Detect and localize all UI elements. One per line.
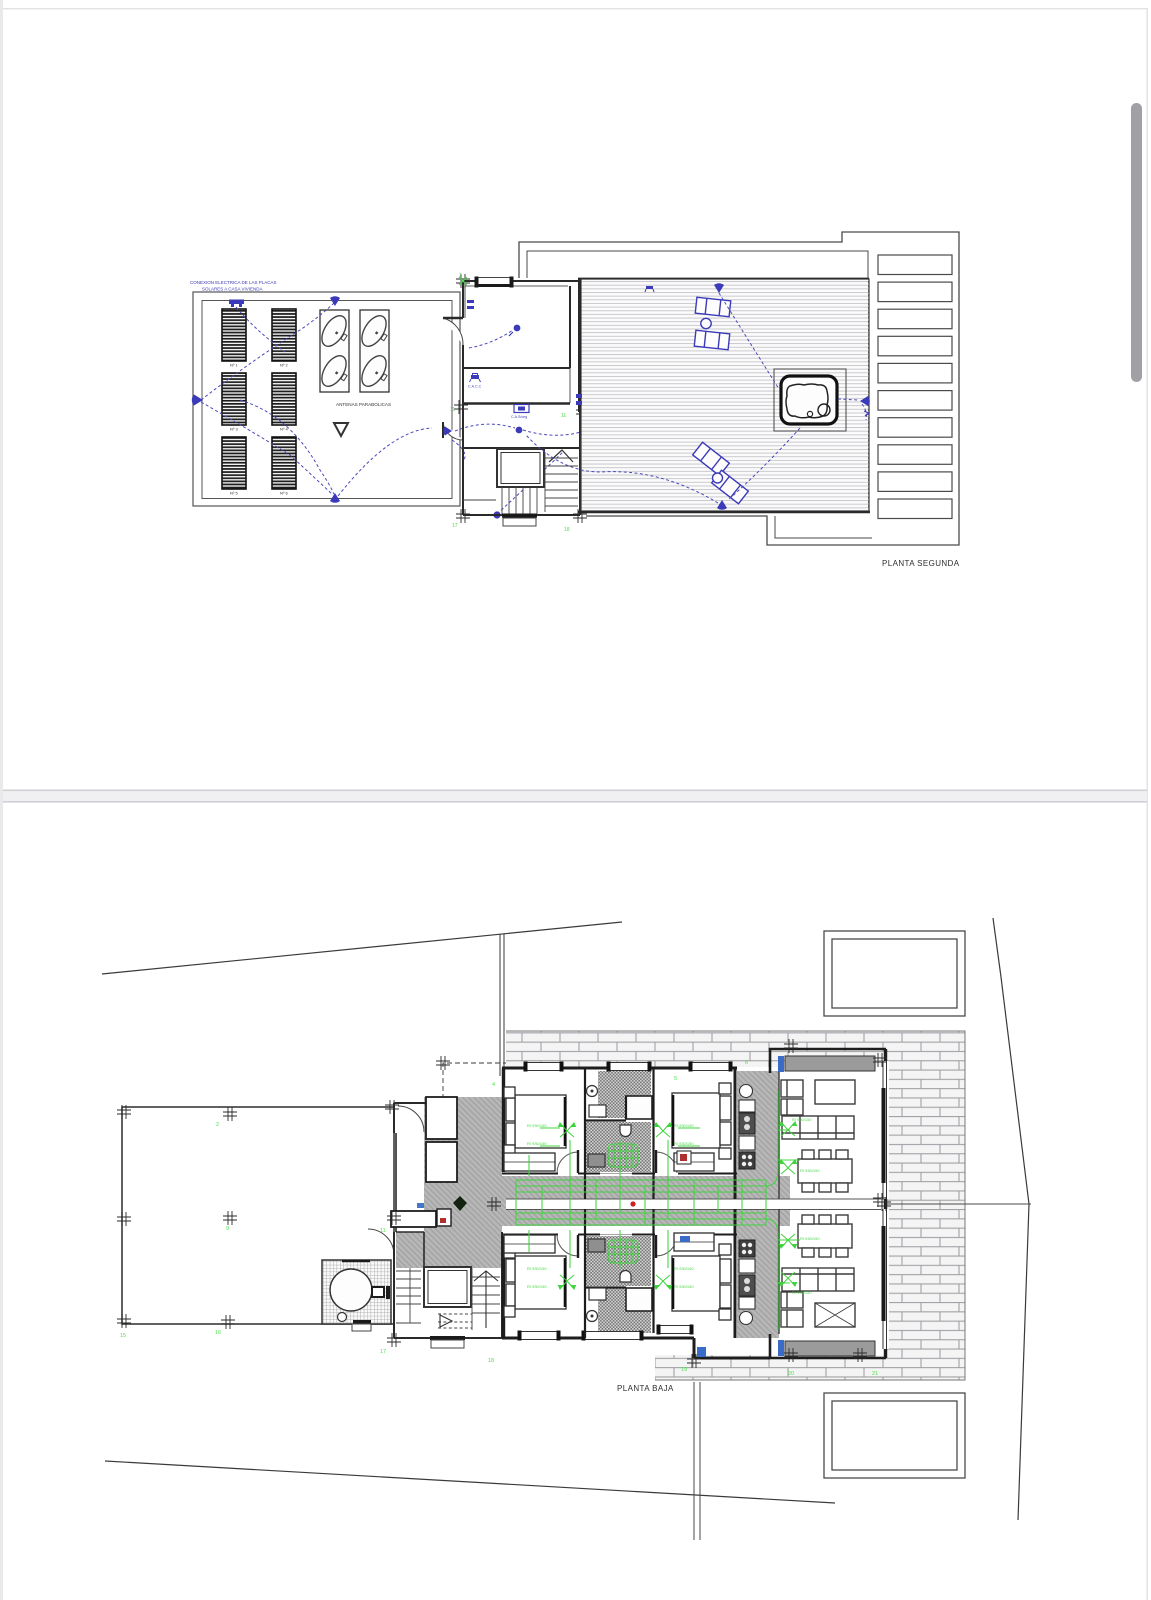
svg-text:5: 5	[674, 1076, 677, 1082]
svg-text:RI 930/150: RI 930/150	[792, 1117, 812, 1122]
svg-text:RI 930/150: RI 930/150	[674, 1141, 694, 1146]
svg-text:15: 15	[120, 1333, 126, 1339]
svg-text:RI 930/150: RI 930/150	[674, 1266, 694, 1271]
svg-text:PLANTA BAJA: PLANTA BAJA	[617, 1384, 674, 1393]
svg-text:21: 21	[872, 1371, 878, 1377]
svg-text:18: 18	[564, 527, 570, 533]
svg-text:4: 4	[492, 1082, 495, 1088]
svg-text:RI 930/150: RI 930/150	[527, 1284, 547, 1289]
svg-text:PLANTA SEGUNDA: PLANTA SEGUNDA	[882, 559, 960, 568]
svg-text:RI 930/150: RI 930/150	[527, 1141, 547, 1146]
svg-text:RI 930/150: RI 930/150	[800, 1168, 820, 1173]
svg-text:17: 17	[380, 1349, 386, 1355]
svg-text:C.A.S/veg: C.A.S/veg	[511, 415, 527, 419]
svg-text:RI 930/150: RI 930/150	[792, 1290, 812, 1295]
svg-text:11: 11	[450, 407, 455, 413]
svg-text:Nº 6: Nº 6	[280, 491, 288, 496]
svg-text:Nº 5: Nº 5	[230, 491, 238, 496]
svg-text:ANTENAS PARABOLICAS: ANTENAS PARABOLICAS	[336, 402, 391, 407]
svg-text:17: 17	[452, 523, 458, 529]
svg-text:RI 930/150: RI 930/150	[527, 1123, 547, 1128]
svg-text:Nº 1: Nº 1	[230, 363, 238, 368]
svg-text:C.A.C.C: C.A.C.C	[468, 385, 482, 389]
svg-text:19: 19	[681, 1367, 687, 1373]
svg-text:16: 16	[215, 1330, 221, 1336]
svg-text:CONEXION ELECTRICA DE LAS PLAC: CONEXION ELECTRICA DE LAS PLACAS	[190, 280, 277, 285]
svg-text:RI 930/150: RI 930/150	[674, 1123, 694, 1128]
svg-text:Nº 2: Nº 2	[280, 363, 288, 368]
svg-text:11: 11	[380, 1228, 386, 1234]
svg-text:20: 20	[788, 1371, 794, 1377]
svg-text:RI 930/150: RI 930/150	[800, 1236, 820, 1241]
svg-text:Nº 3: Nº 3	[230, 427, 238, 432]
svg-text:SOLARES A CASA VIVIENDA: SOLARES A CASA VIVIENDA	[202, 287, 263, 292]
svg-text:RI 930/150: RI 930/150	[674, 1284, 694, 1289]
svg-text:2: 2	[216, 1122, 219, 1128]
svg-text:18: 18	[488, 1358, 494, 1364]
svg-text:11: 11	[561, 413, 566, 419]
svg-text:RI 930/150: RI 930/150	[527, 1266, 547, 1271]
svg-text:9: 9	[226, 1226, 229, 1232]
svg-text:6: 6	[745, 1060, 748, 1066]
